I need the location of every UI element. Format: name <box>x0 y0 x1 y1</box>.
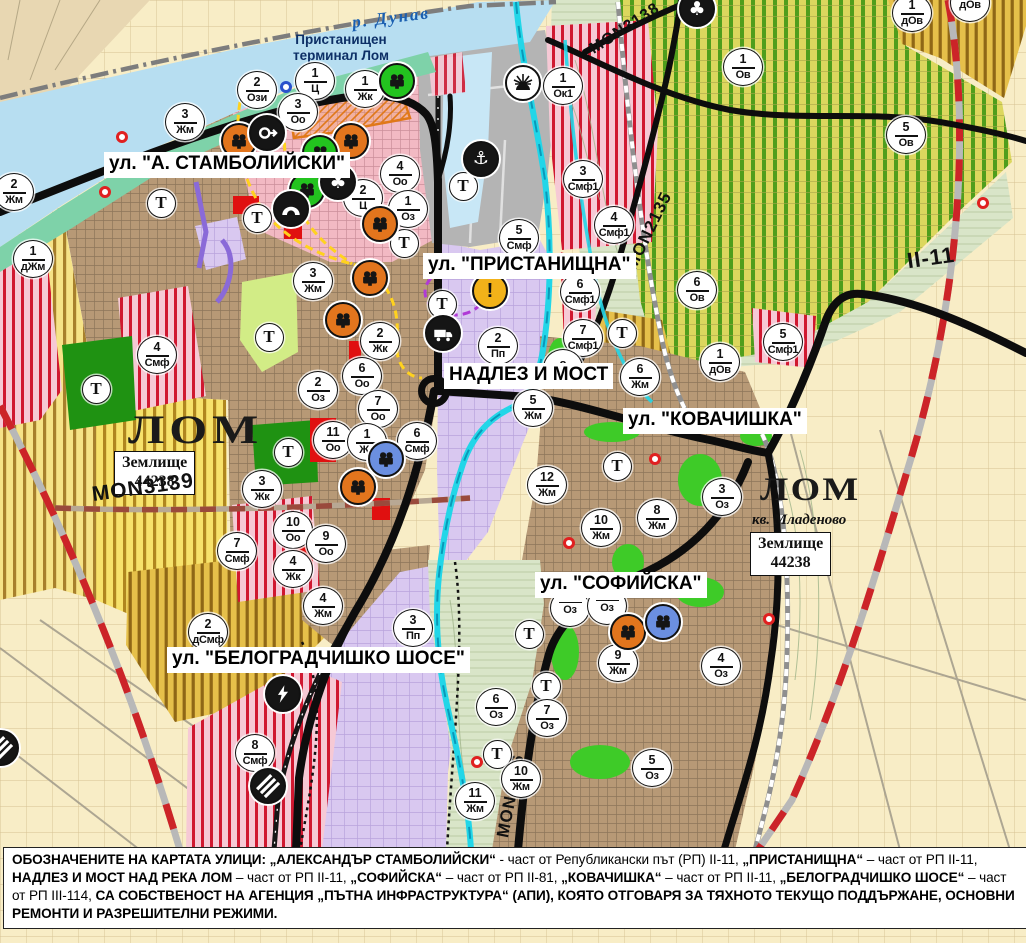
zone-marker: 2Пп <box>478 327 518 365</box>
landplot-number: 44238 <box>758 554 823 573</box>
legend-segment: ОБОЗНАЧЕНИТЕ НА КАРТАТА УЛИЦИ: „АЛЕКСАНД… <box>12 852 496 867</box>
transformer-marker: Т <box>603 452 632 481</box>
zone-marker: 8Смф <box>235 734 275 772</box>
zone-marker: 3Оз <box>702 478 742 516</box>
zone-marker: 3Жм <box>165 103 205 141</box>
zone-marker: 4Оз <box>701 647 741 685</box>
legend-segment: – част от РП II-11, <box>232 870 350 885</box>
heritage-icon <box>645 604 681 640</box>
transformer-marker: Т <box>449 172 478 201</box>
lom-mladenovo-label: ЛОМ <box>760 472 861 509</box>
red-dot-marker <box>563 537 575 549</box>
street-label: ул. "ПРИСТАНИЩНА" <box>423 253 636 279</box>
zone-marker: 11Жм <box>455 782 495 820</box>
zone-marker: 5Смф <box>499 219 539 257</box>
zone-marker: 3Смф1 <box>563 160 603 198</box>
lightning-icon <box>265 676 301 712</box>
heritage-icon <box>340 469 376 505</box>
legend-segment: – част от РП II-11, <box>863 852 977 867</box>
zone-marker: 9Оо <box>306 525 346 563</box>
heritage-icon <box>362 206 398 242</box>
street-label: ул. "БЕЛОГРАДЧИШКО ШОСЕ" <box>167 647 470 673</box>
zoning-map-canvas: р. Дунав Пристанищен терминал Лом ЛОМ Зе… <box>0 0 1026 943</box>
zone-marker: 2Ози <box>237 71 277 109</box>
zone-marker: 2дСмф <box>188 613 228 651</box>
zone-marker: 8Жм <box>637 499 677 537</box>
kv-mladenovo-label: кв. Младеново <box>752 512 846 529</box>
zone-marker: 7Оз <box>527 699 567 737</box>
transformer-marker: Т <box>255 323 284 352</box>
transformer-marker: Т <box>82 375 111 404</box>
zone-marker: 4Смф1 <box>594 206 634 244</box>
zone-marker: 5Оз <box>632 749 672 787</box>
zone-marker: 3Пп <box>393 609 433 647</box>
legend-segment: „ПРИСТАНИЩНА“ <box>742 852 863 867</box>
zone-marker: 9Жм <box>598 644 638 682</box>
red-dot-marker <box>763 613 775 625</box>
landplot-word: Землище <box>758 535 823 554</box>
street-label: ул. "КОВАЧИШКА" <box>623 408 807 434</box>
legend-segment: – част от РП II-11, <box>662 870 780 885</box>
legend-segment: - част от Републикански път (РП) II-11, <box>496 852 742 867</box>
legend-segment: „КОВАЧИШКА“ <box>561 870 661 885</box>
port-terminal-line2: терминал Лом <box>293 48 389 63</box>
anchor-icon: ⚓ <box>463 141 499 177</box>
zone-marker: 3Оо <box>278 93 318 131</box>
landplot-label-right: Землище 44238 <box>750 532 831 576</box>
heritage-icon <box>379 63 415 99</box>
truck-icon <box>425 315 461 351</box>
transformer-marker: Т <box>243 204 272 233</box>
zone-marker: 2Оз <box>298 371 338 409</box>
red-dot-marker <box>116 131 128 143</box>
zone-marker: 2Жк <box>360 322 400 360</box>
red-dot-marker <box>99 186 111 198</box>
heritage-icon <box>610 614 646 650</box>
legend-segment: – част от РП II-81, <box>442 870 561 885</box>
zone-marker: 3Жк <box>242 470 282 508</box>
zone-marker: 10Жм <box>581 509 621 547</box>
street-label: ул. "СОФИЙСКА" <box>535 572 707 598</box>
red-dot-marker <box>649 453 661 465</box>
zone-marker: 6Оз <box>476 688 516 726</box>
legend-text: ОБОЗНАЧЕНИТЕ НА КАРТАТА УЛИЦИ: „АЛЕКСАНД… <box>3 847 1026 929</box>
zone-marker: 6Жм <box>620 358 660 396</box>
zone-marker: 10Жм <box>501 760 541 798</box>
zone-marker: 1дЖм <box>13 240 53 278</box>
red-dot-marker <box>471 756 483 768</box>
port-terminal-label: Пристанищен терминал Лом <box>280 32 402 64</box>
street-label: ул. "А. СТАМБОЛИЙСКИ" <box>104 152 350 178</box>
port-terminal-line1: Пристанищен <box>295 32 386 47</box>
zone-marker: 3Жм <box>293 262 333 300</box>
heritage-icon <box>352 260 388 296</box>
zone-marker: 5Ов <box>886 116 926 154</box>
zone-marker: 4Оо <box>380 155 420 193</box>
zone-marker: 4Жк <box>273 550 313 588</box>
heritage-icon <box>368 441 404 477</box>
zone-marker: 12Жм <box>527 466 567 504</box>
zone-marker: 5Жм <box>513 389 553 427</box>
zone-marker: 1дОв <box>700 343 740 381</box>
legend-segment: НАДЛЕЗ И МОСТ НАД РЕКА ЛОМ <box>12 870 232 885</box>
keyhole-icon <box>249 115 285 151</box>
legend-segment: СА СОБСТВЕНОСТ НА АГЕНЦИЯ „ПЪТНА ИНФРАСТ… <box>12 888 1015 921</box>
transformer-marker: Т <box>274 438 303 467</box>
zone-marker: 4Смф <box>137 336 177 374</box>
transformer-marker: Т <box>608 319 637 348</box>
zone-marker: 4Жм <box>303 587 343 625</box>
red-dot-marker <box>977 197 989 209</box>
tunnel-icon <box>273 191 309 227</box>
zone-marker: 5Смф1 <box>763 323 803 361</box>
transformer-marker: Т <box>532 672 561 701</box>
heritage-icon <box>325 302 361 338</box>
zone-marker: 1Ок1 <box>543 67 583 105</box>
blue-dot-marker <box>280 81 292 93</box>
sun-icon <box>505 65 541 101</box>
transformer-marker: Т <box>147 189 176 218</box>
zone-marker: 7Смф <box>217 532 257 570</box>
transformer-marker: Т <box>515 620 544 649</box>
crossing-icon <box>250 768 286 804</box>
zone-marker: 6Ов <box>677 271 717 309</box>
legend-segment: „СОФИЙСКА“ <box>350 870 442 885</box>
legend-segment: „БЕЛОГРАДЧИШКО ШОСЕ“ <box>780 870 965 885</box>
street-label: НАДЛЕЗ И МОСТ <box>444 363 613 389</box>
lom-city-label: ЛОМ <box>128 406 263 453</box>
zone-marker: 1Ов <box>723 48 763 86</box>
